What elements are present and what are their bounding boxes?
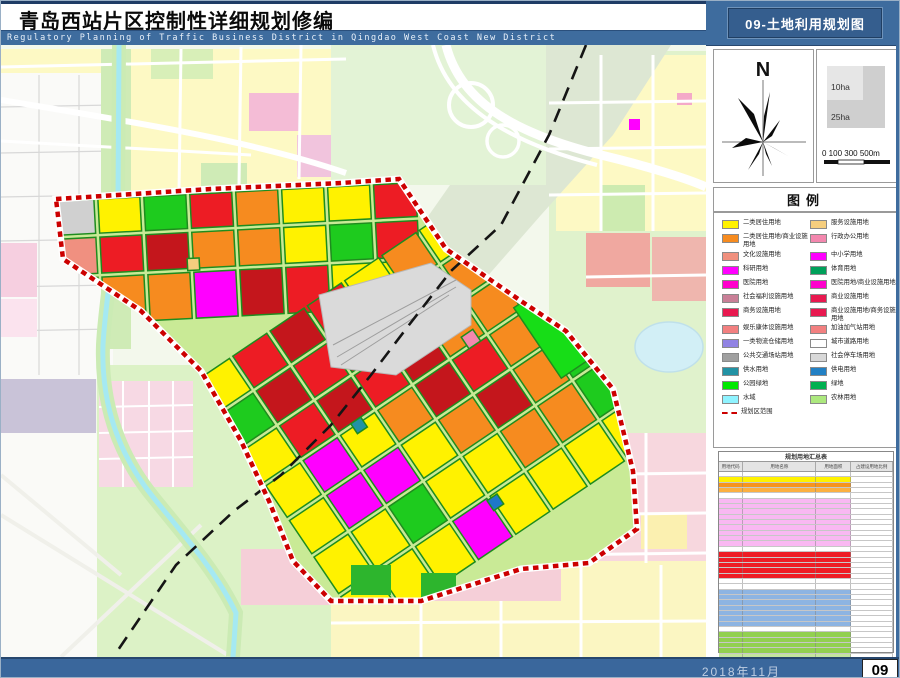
table-cell [851,477,893,481]
table-cell [851,563,893,567]
right-panel: 09-土地利用规划图 N [706,1,900,657]
table-cell [719,574,743,578]
legend-label: 商务设施用地 [743,307,781,315]
legend-label: 医院用地 [743,279,768,287]
table-cell [719,648,743,652]
table-cell [719,531,743,535]
table-cell [719,606,743,610]
table-cell [743,536,816,540]
legend-swatch [810,308,827,317]
table-cell [816,563,851,567]
legend-item: 商业设施用地 [810,293,896,305]
table-cell [816,525,851,529]
legend-item: 二类居住用地 [722,219,808,231]
legend-label: 中小学用地 [831,251,862,259]
table-cell [816,493,851,497]
legend-item: 体育用地 [810,265,896,277]
legend-label: 文化设施用地 [743,251,781,259]
table-cell [851,515,893,519]
legend-item: 加油加气站用地 [810,324,896,336]
table-cell [851,493,893,497]
table-cell [719,643,743,647]
table-cell [743,579,816,583]
legend-items: 二类居住用地服务设施用地二类居住用地/商业设施用地行政办公用地文化设施用地中小学… [722,219,896,420]
legend-item: 公共交通场站用地 [722,352,808,364]
table-cell [719,541,743,545]
table-cell [851,600,893,604]
table-cell [816,648,851,652]
table-cell [743,541,816,545]
table-cell [816,632,851,636]
title-area: 青岛西站片区控制性详细规划修编 [1,4,706,30]
north-arrow: N [714,50,813,182]
table-cell [816,558,851,562]
table-cell [851,568,893,572]
table-cell [719,579,743,583]
compass-rose [732,92,788,170]
table-cell [851,632,893,636]
table-cell [851,525,893,529]
table-cell [719,584,743,588]
table-cell [851,552,893,556]
table-cell [719,493,743,497]
footer-bar: 2018年11月 09 [1,657,900,678]
legend-item: 文化设施用地 [722,251,808,263]
table-cell [816,638,851,642]
table-cell [851,488,893,492]
legend-swatch [810,220,827,229]
table-cell [816,520,851,524]
table-cell [816,622,851,626]
table-cell [743,558,816,562]
legend-label: 商业设施用地/商务设施用地 [831,307,896,323]
legend-item: 社会停车场用地 [810,352,896,364]
legend-swatch [722,220,739,229]
legend-swatch [810,325,827,334]
legend-item: 娱乐康体设施用地 [722,324,808,336]
landuse-table-rows [719,472,893,678]
table-cell [851,504,893,508]
legend-swatch [722,353,739,362]
table-cell [719,547,743,551]
table-cell [719,472,743,476]
table-cell [719,611,743,615]
table-cell [719,558,743,562]
table-cell [719,536,743,540]
table-cell [851,483,893,487]
legend-label: 二类居住用地/商业设施用地 [743,233,808,249]
table-cell [743,648,816,652]
table-cell [743,643,816,647]
plan-sheet: 青岛西站片区控制性详细规划修编 Regulatory Planning of T… [0,0,900,678]
legend-item: 供电用地 [810,366,896,378]
legend-swatch [722,308,739,317]
legend-item: 水域 [722,394,808,406]
legend-item: 社会福利设施用地 [722,293,808,305]
table-cell [851,520,893,524]
table-cell [719,568,743,572]
legend-item: 行政办公用地 [810,233,896,249]
table-cell [743,531,816,535]
table-cell [816,509,851,513]
table-header-cell: 占建设用地比例 [851,462,893,471]
legend-swatch [810,252,827,261]
table-cell [851,574,893,578]
table-cell [816,627,851,631]
table-cell [851,472,893,476]
compass-box: N [713,49,814,183]
table-header-cell: 用地名称 [743,462,816,471]
legend-label: 服务设施用地 [831,219,869,227]
table-cell [743,477,816,481]
table-cell [743,488,816,492]
legend-label: 绿地 [831,380,844,388]
table-cell [816,584,851,588]
page-number: 09 [862,659,898,678]
table-cell [851,648,893,652]
legend-swatch [810,395,827,404]
table-cell [719,563,743,567]
legend-item: 科研用地 [722,265,808,277]
page-subtitle-en: Regulatory Planning of Traffic Business … [1,31,706,43]
legend-swatch [722,280,739,289]
table-cell [851,509,893,513]
table-cell [851,611,893,615]
table-header-row: 用地代码 用地名称 用地面积 占建设用地比例 [719,462,893,472]
table-cell [816,504,851,508]
legend-item: 城市道路用地 [810,338,896,350]
table-cell [743,552,816,556]
table-cell [719,590,743,594]
legend-swatch [810,266,827,275]
scale-graphic: 10ha 25ha 0 100 300 500m [817,50,898,182]
legend-label: 供水用地 [743,366,768,374]
legend-swatch [722,395,739,404]
legend-swatch [722,367,739,376]
table-cell [743,632,816,636]
table-cell [816,590,851,594]
footer-date: 2018年11月 [702,663,781,678]
table-cell [743,638,816,642]
table-cell [743,547,816,551]
legend-swatch [722,294,739,303]
table-cell [816,536,851,540]
legend-label: 一类物流仓储用地 [743,338,793,346]
table-cell [816,600,851,604]
table-cell [719,600,743,604]
table-cell [851,627,893,631]
legend-label: 公共交通场站用地 [743,352,793,360]
table-cell [851,643,893,647]
table-cell [851,536,893,540]
legend-label: 社会福利设施用地 [743,293,793,301]
legend-item: 农林用地 [810,394,896,406]
legend-title: 图例 [787,190,825,209]
table-cell [851,558,893,562]
legend-swatch [722,325,739,334]
legend-label: 体育用地 [831,265,856,273]
legend-label: 农林用地 [831,394,856,402]
table-cell [719,520,743,524]
area-10ha-label: 10ha [831,82,850,92]
legend-label: 供电用地 [831,366,856,374]
legend-item: 中小学用地 [810,251,896,263]
table-cell [816,499,851,503]
legend-item: 医院用地 [722,279,808,291]
table-cell [816,472,851,476]
legend-item: 商务设施用地 [722,307,808,323]
legend-swatch [810,353,827,362]
legend-swatch [722,339,739,348]
table-cell [719,552,743,556]
table-cell [851,622,893,626]
table-cell [743,515,816,519]
table-cell [816,606,851,610]
legend-box: 二类居住用地服务设施用地二类居住用地/商业设施用地行政办公用地文化设施用地中小学… [713,212,899,448]
table-cell [816,595,851,599]
table-cell [743,563,816,567]
legend-label: 水域 [743,394,756,402]
table-cell [851,499,893,503]
table-cell [816,547,851,551]
legend-item: 医院用地/商业设施用地 [810,279,896,291]
table-cell [719,525,743,529]
table-cell [816,616,851,620]
table-cell [719,622,743,626]
table-cell [743,574,816,578]
legend-label: 社会停车场用地 [831,352,875,360]
table-cell [743,499,816,503]
table-cell [851,579,893,583]
legend-label: 医院用地/商业设施用地 [831,279,896,287]
table-cell [719,477,743,481]
legend-item: 供水用地 [722,366,808,378]
legend-item: 商业设施用地/商务设施用地 [810,307,896,323]
table-cell [719,595,743,599]
table-cell [719,638,743,642]
table-header-cell: 用地面积 [816,462,851,471]
scale-bar-labels: 0 100 300 500m [822,149,880,158]
sheet-title-block: 09-土地利用规划图 [706,1,900,46]
table-cell [743,595,816,599]
legend-swatch [722,381,739,390]
table-cell [719,509,743,513]
table-cell [743,627,816,631]
table-cell [743,472,816,476]
table-cell [851,590,893,594]
table-cell [743,622,816,626]
table-cell [816,488,851,492]
legend-swatch [810,294,827,303]
table-cell [719,483,743,487]
table-cell [816,552,851,556]
legend-swatch [810,234,827,243]
area-25ha-label: 25ha [831,112,850,122]
table-cell [719,488,743,492]
table-cell [851,531,893,535]
table-cell [816,643,851,647]
table-cell [719,504,743,508]
legend-swatch [722,252,739,261]
table-cell [719,499,743,503]
north-label: N [756,59,770,81]
table-cell [816,574,851,578]
legend-label: 科研用地 [743,265,768,273]
table-cell [816,541,851,545]
table-cell [743,509,816,513]
table-cell [851,595,893,599]
table-cell [743,493,816,497]
table-cell [719,632,743,636]
table-cell [816,483,851,487]
legend-label: 公园绿地 [743,380,768,388]
legend-label: 二类居住用地 [743,219,781,227]
table-cell [816,568,851,572]
table-cell [851,547,893,551]
table-title: 规划用地汇总表 [719,452,893,462]
legend-item: 一类物流仓储用地 [722,338,808,350]
table-cell [851,584,893,588]
table-cell [743,590,816,594]
table-header-cell: 用地代码 [719,462,743,471]
right-border-line [896,1,899,678]
table-cell [743,483,816,487]
table-cell [719,616,743,620]
map-area [1,45,706,657]
legend-label: 行政办公用地 [831,233,869,241]
legend-label: 城市道路用地 [831,338,869,346]
land-use-map [1,45,706,657]
table-cell [816,477,851,481]
table-cell [719,627,743,631]
legend-label: 娱乐康体设施用地 [743,324,793,332]
legend-swatch [722,234,739,243]
table-cell [743,520,816,524]
table-cell [851,638,893,642]
legend-swatch [722,266,739,275]
scale-box: 10ha 25ha 0 100 300 500m [816,49,899,183]
table-cell [743,611,816,615]
legend-swatch [810,381,827,390]
legend-label: 规划区范围 [741,408,772,416]
table-cell [816,579,851,583]
legend-label: 加油加气站用地 [831,324,875,332]
table-cell [743,606,816,610]
legend-swatch [810,367,827,376]
boundary-dash-symbol [722,412,737,414]
landuse-table: 规划用地汇总表 用地代码 用地名称 用地面积 占建设用地比例 [718,451,894,653]
legend-item: 规划区范围 [722,408,808,420]
legend-swatch [810,339,827,348]
legend-label: 商业设施用地 [831,293,869,301]
table-cell [851,606,893,610]
table-cell [743,504,816,508]
table-cell [851,541,893,545]
legend-item: 服务设施用地 [810,219,896,231]
table-cell [743,616,816,620]
table-cell [816,611,851,615]
legend-item: 绿地 [810,380,896,392]
table-cell [743,525,816,529]
legend-item: 公园绿地 [722,380,808,392]
legend-header: 图例 [713,187,899,212]
table-cell [851,616,893,620]
legend-swatch [810,280,827,289]
sheet-title: 09-土地利用规划图 [745,14,865,33]
table-cell [816,515,851,519]
table-cell [743,584,816,588]
table-cell [719,515,743,519]
table-cell [743,600,816,604]
pond [635,322,703,372]
table-cell [816,531,851,535]
subtitle-bar: Regulatory Planning of Traffic Business … [1,30,706,46]
legend-item: 二类居住用地/商业设施用地 [722,233,808,249]
table-cell [743,568,816,572]
